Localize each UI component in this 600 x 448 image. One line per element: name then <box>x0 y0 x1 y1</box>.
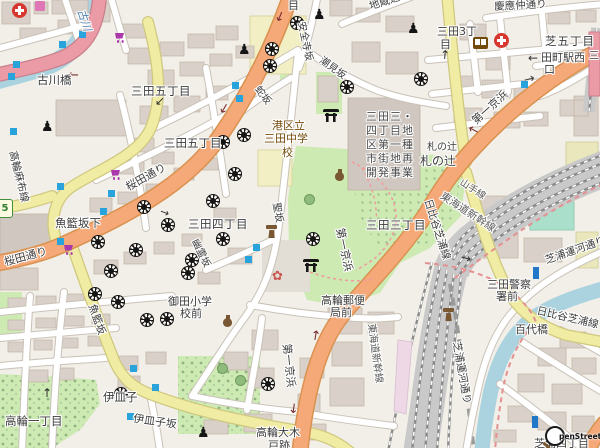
osm-attribution-text: penStreetMap <box>559 432 600 441</box>
map-canvas <box>0 0 600 448</box>
map[interactable]: ♟♟♟♟♟✿5←↓↓←↑↓→←↑→↑↙→ 目地蔵通り慶應仲通り芝五丁目三田3丁目… <box>0 0 600 448</box>
